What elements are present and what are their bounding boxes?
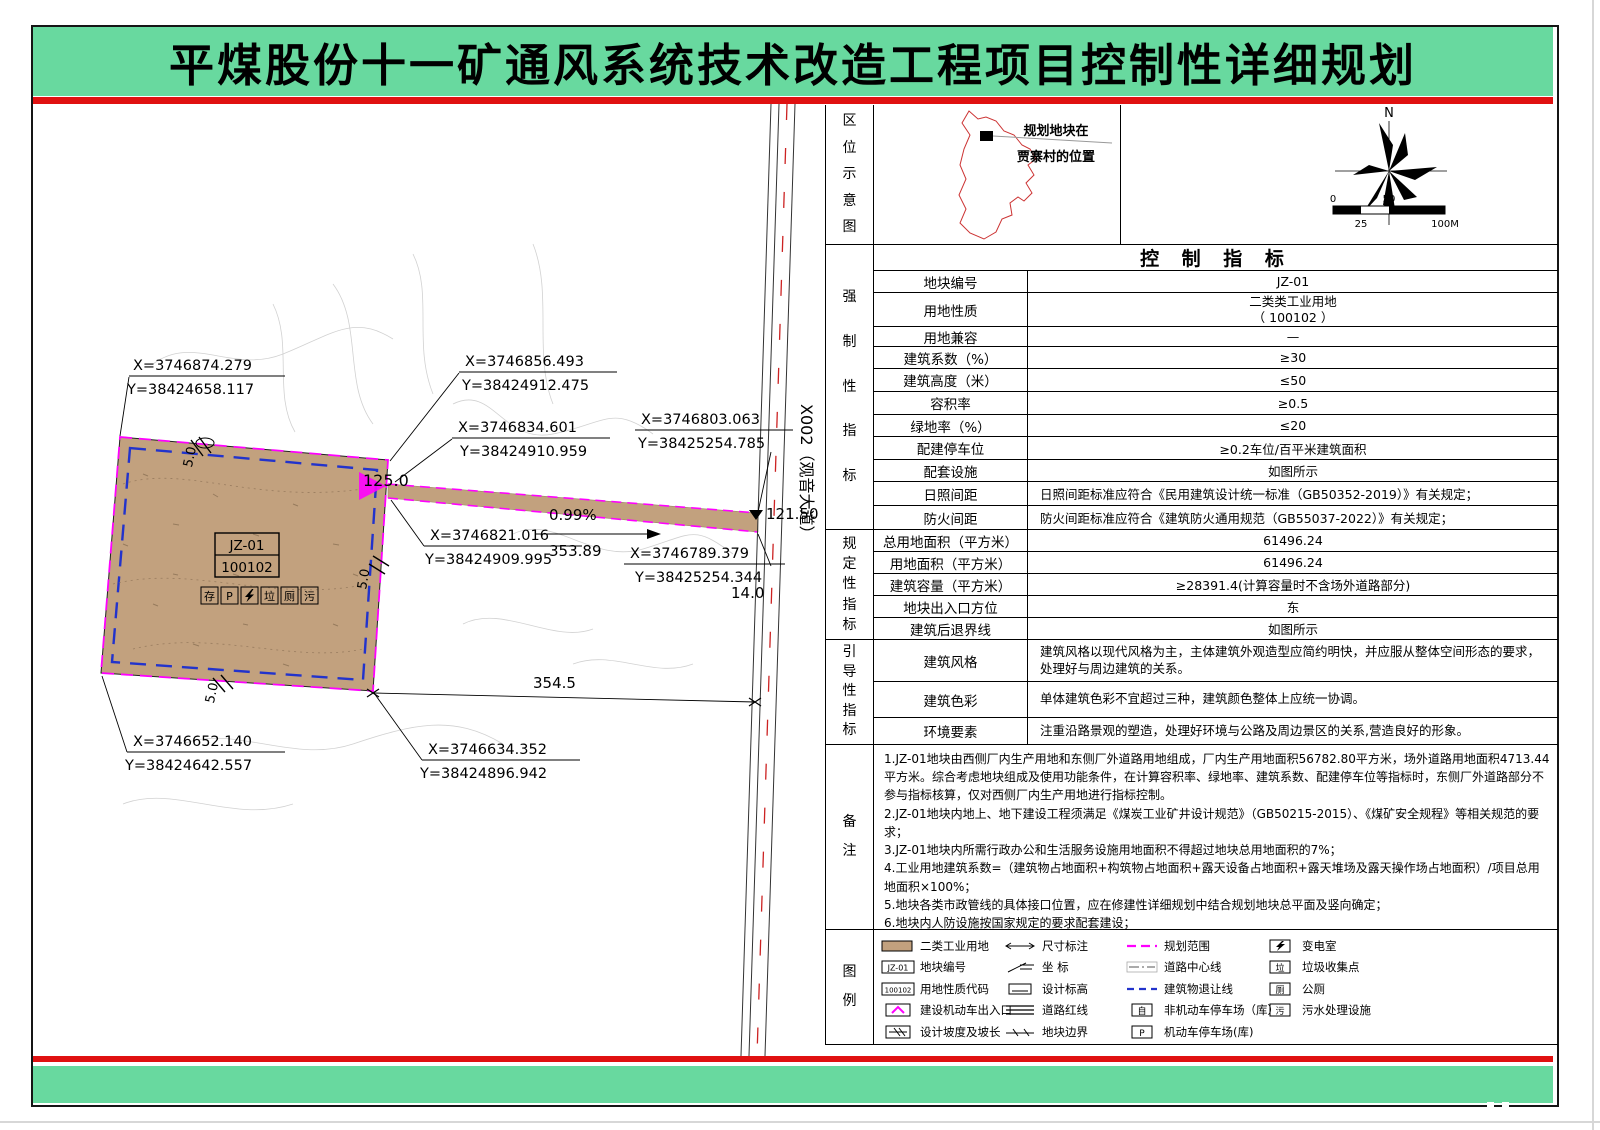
road-centerline-symbol [1124, 959, 1164, 975]
row-environment: 环境要素 注重沿路景观的塑造，处理好环境与公路及周边景区的关系,营造良好的形象。 [874, 718, 1558, 745]
sewage-icon: 污 [304, 590, 315, 603]
legend-col-4: 变电室 垃 垃圾收集点 厕 公厕 污 [1262, 935, 1371, 1021]
row-plot-number: 地块编号 JZ-01 [874, 271, 1558, 293]
sewage-facility-symbol: 污 [1262, 1002, 1302, 1018]
top-red-rule [33, 97, 1553, 104]
window-edge-right [1592, 0, 1594, 1130]
legend-item: 设计坡度及坡长 [880, 1021, 1012, 1043]
row-building-height: 建筑高度（米） ≤50 [874, 369, 1558, 392]
svg-text:JZ-01: JZ-01 [887, 964, 909, 973]
row-land-compat: 用地兼容 — [874, 327, 1558, 347]
legend-item: 建设机动车出入口 [880, 1000, 1012, 1022]
use-code-symbol: 100102 [880, 981, 920, 997]
section-label-mandatory: 强制性指标 [826, 245, 874, 530]
scale-25: 25 [1355, 219, 1368, 230]
svg-text:Y=38424658.117: Y=38424658.117 [126, 382, 254, 398]
dim-125: 125.0 [363, 471, 409, 490]
svg-text:X=3746856.493: X=3746856.493 [465, 354, 584, 370]
legend-item: 垃 垃圾收集点 [1262, 957, 1371, 979]
row-land-use: 用地性质 二类类工业用地 （ 100102 ） [874, 293, 1558, 327]
svg-text:X=3746834.601: X=3746834.601 [458, 420, 577, 436]
notes-block: 1.JZ-01地块由西侧厂内生产用地和东侧厂外道路用地组成，厂内生产用地面积56… [874, 745, 1558, 930]
legend-item: P 机动车停车场(库) [1124, 1021, 1279, 1043]
row-land-area: 用地面积（平方米） 61496.24 [874, 552, 1558, 574]
road-redline-symbol [1002, 1002, 1042, 1018]
location-callout-line2: 贾寨村的位置 [1017, 149, 1095, 165]
industrial-land-swatch [880, 938, 920, 954]
slope-value: 0.99% [549, 506, 597, 524]
scale-50: 50 [1383, 194, 1396, 205]
svg-text:Y=38425254.785: Y=38425254.785 [637, 436, 765, 452]
info-panel: 区位示意图 强制性指标 规定性指标 引导性指标 备注 图例 [825, 105, 1558, 1045]
svg-text:Y=38424642.557: Y=38424642.557 [124, 758, 252, 774]
section-label-location: 区位示意图 [826, 105, 874, 245]
plot-boundary-symbol [1002, 1024, 1042, 1040]
row-green-ratio: 绿地率（%） ≤20 [874, 415, 1558, 437]
section-label-prescriptive: 规定性指标 [826, 530, 874, 640]
planning-scope-symbol [1124, 938, 1164, 954]
site-plan: X002（观音大道） JZ-01 100102 存 P 垃 厕 [33, 104, 825, 1056]
parcel-use-code: 100102 [221, 560, 273, 576]
legend-col-2: 尺寸标注 坐 标 设计标高 [1002, 935, 1088, 1043]
location-map: 规划地块在 贾寨村的位置 [874, 105, 1121, 244]
section-label-notes: 备注 [826, 745, 874, 930]
legend-item: 二类工业用地 [880, 935, 1012, 957]
legend-item: 建筑物退让线 [1124, 978, 1279, 1000]
section-label-column: 区位示意图 强制性指标 规定性指标 引导性指标 备注 图例 [826, 105, 874, 1045]
svg-text:X=3746789.379: X=3746789.379 [630, 546, 749, 562]
location-callout-line1: 规划地块在 [1023, 123, 1088, 139]
note-item: 3.JZ-01地块内所需行政办公和生活服务设施用地面积不得超过地块总用地面积的7… [884, 841, 1550, 859]
svg-text:污: 污 [1275, 1005, 1284, 1017]
wind-rose: N 0 [1121, 105, 1557, 244]
site-plan-drawing: X002（观音大道） JZ-01 100102 存 P 垃 厕 [33, 104, 825, 1056]
row-total-area: 总用地面积（平方米） 61496.24 [874, 530, 1558, 552]
legend-item: 设计标高 [1002, 978, 1088, 1000]
coord-c7: X=3746652.140 Y=38424642.557 [102, 676, 285, 774]
svg-text:Y=38424909.995: Y=38424909.995 [424, 552, 552, 568]
setback-line-symbol [1124, 981, 1164, 997]
substation-symbol [1262, 938, 1302, 954]
scale-bar: 0 50 25 100M [1330, 194, 1459, 230]
dimension-symbol [1002, 938, 1042, 954]
page-title: 平煤股份十一矿通风系统技术改造工程项目控制性详细规划 [169, 29, 1417, 94]
parking-icon: P [226, 590, 233, 603]
row-building-capacity: 建筑容量（平方米） ≥28391.4(计算容量时不含场外道路部分) [874, 574, 1558, 596]
control-table-header: 控 制 指 标 [874, 245, 1558, 271]
row-parking: 配建停车位 ≥0.2车位/百平米建筑面积 [874, 437, 1558, 460]
legend-item: 道路红线 [1002, 1000, 1088, 1022]
bottom-banner [33, 1066, 1553, 1103]
bottom-red-rule [33, 1056, 1553, 1062]
svg-text:X=3746652.140: X=3746652.140 [133, 734, 252, 750]
legend-col-3: 规划范围 道路中心线 建筑物退让线 自 [1124, 935, 1279, 1043]
section-label-legend: 图例 [826, 930, 874, 1045]
parcel-code: JZ-01 [228, 538, 264, 554]
window-edge-bottom [0, 1121, 1600, 1123]
row-sunlight-spacing: 日照间距 日照间距标准应符合《民用建筑设计统一标准（GB50352-2019）》… [874, 482, 1558, 506]
legend-item: 道路中心线 [1124, 957, 1279, 979]
svg-text:100102: 100102 [885, 986, 912, 994]
location-map-drawing: 规划地块在 贾寨村的位置 [874, 105, 1120, 244]
note-item: 4.工业用地建筑系数=（建筑物占地面积+构筑物占地面积+露天设备占地面积+露天堆… [884, 859, 1550, 895]
svg-text:X=3746821.016: X=3746821.016 [430, 528, 549, 544]
legend-item: 污 污水处理设施 [1262, 1000, 1371, 1022]
slope-symbol [880, 1024, 920, 1040]
svg-text:P: P [1139, 1029, 1145, 1039]
wind-rose-cell: N 0 [1121, 105, 1558, 244]
plot-location-marker [980, 131, 993, 141]
svg-text:5.0: 5.0 [203, 681, 222, 704]
legend-item: JZ-01 地块编号 [880, 957, 1012, 979]
lightning-icon [1276, 941, 1285, 951]
coordinate-symbol [1002, 959, 1042, 975]
design-elevation-symbol [1002, 981, 1042, 997]
coord-c3: X=3746834.601 Y=38424910.959 [395, 420, 610, 482]
road-width: 14.0 [731, 584, 764, 602]
row-supporting-facilities: 配套设施 如图所示 [874, 460, 1558, 482]
border-gap [1502, 1102, 1509, 1107]
plot-number-symbol: JZ-01 [880, 959, 920, 975]
legend-item: 变电室 [1262, 935, 1371, 957]
legend-item: 尺寸标注 [1002, 935, 1088, 957]
trash-icon: 垃 [264, 589, 275, 603]
note-item: 2.JZ-01地块内地上、地下建设工程须满足《煤炭工业矿井设计规范》（GB502… [884, 805, 1550, 841]
title-banner: 平煤股份十一矿通风系统技术改造工程项目控制性详细规划 [33, 27, 1553, 96]
svg-text:Y=38424912.475: Y=38424912.475 [461, 378, 589, 394]
svg-text:Y=38424910.959: Y=38424910.959 [459, 444, 587, 460]
svg-text:X=3746634.352: X=3746634.352 [428, 742, 547, 758]
row-building-style: 建筑风格 建筑风格以现代风格为主，主体建筑外观造型应简约明快，并应服从整体空间形… [874, 640, 1558, 682]
note-item: 1.JZ-01地块由西侧厂内生产用地和东侧厂外道路用地组成，厂内生产用地面积56… [884, 750, 1550, 805]
storage-icon: 存 [204, 589, 215, 603]
north-label: N [1384, 106, 1394, 121]
legend-item: 规划范围 [1124, 935, 1279, 957]
section-label-guiding: 引导性指标 [826, 640, 874, 745]
row-building-coeff: 建筑系数（%） ≥30 [874, 347, 1558, 369]
plan-sheet: 平煤股份十一矿通风系统技术改造工程项目控制性详细规划 [0, 0, 1600, 1130]
svg-text:垃: 垃 [1275, 962, 1284, 974]
vehicle-entrance-symbol [880, 1002, 920, 1018]
row-setback: 建筑后退界线 如图所示 [874, 618, 1558, 640]
row-entrance-direction: 地块出入口方位 东 [874, 596, 1558, 618]
svg-text:X=3746874.279: X=3746874.279 [133, 358, 252, 374]
coord-c8: X=3746634.352 Y=38424896.942 [374, 693, 580, 782]
location-inset-row: 规划地块在 贾寨村的位置 N [874, 105, 1558, 245]
border-gap [1487, 1102, 1494, 1107]
public-toilet-symbol: 厕 [1262, 981, 1302, 997]
coord-c1: X=3746874.279 Y=38424658.117 [120, 358, 285, 436]
svg-text:自: 自 [1137, 1005, 1146, 1017]
toilet-icon: 厕 [284, 590, 295, 603]
row-fire-spacing: 防火间距 防火间距标准应符合《建筑防火通用规范（GB55037-2022）》有关… [874, 506, 1558, 530]
note-item: 5.地块各类市政管线的具体接口位置，应在修建性详细规划中结合规划地块总平面及竖向… [884, 896, 1550, 914]
legend-item: 厕 公厕 [1262, 978, 1371, 1000]
car-parking-symbol: P [1124, 1024, 1164, 1040]
coord-c6: X=3746789.379 Y=38425254.344 [624, 534, 785, 586]
legend-block: 二类工业用地 JZ-01 地块编号 100102 用地性质代码 [874, 930, 1558, 1045]
dim-354-value: 354.5 [533, 674, 576, 692]
trash-point-symbol: 垃 [1262, 959, 1302, 975]
dim-354: 354.5 [367, 674, 761, 706]
panel-content: 规划地块在 贾寨村的位置 N [874, 105, 1558, 1045]
elevation-value: 121.50 [766, 505, 819, 523]
legend-item: 坐 标 [1002, 957, 1088, 979]
note-item: 6.地块内人防设施按国家规定的要求配套建设； [884, 914, 1550, 930]
scale-0: 0 [1330, 194, 1336, 205]
legend-col-1: 二类工业用地 JZ-01 地块编号 100102 用地性质代码 [880, 935, 1012, 1043]
elevation-marker: 121.50 [749, 505, 819, 523]
legend-item: 100102 用地性质代码 [880, 978, 1012, 1000]
svg-text:厕: 厕 [1275, 985, 1284, 996]
legend-item: 地块边界 [1002, 1021, 1088, 1043]
svg-text:X=3746803.063: X=3746803.063 [641, 412, 760, 428]
row-far: 容积率 ≥0.5 [874, 392, 1558, 415]
scale-100: 100M [1431, 219, 1459, 230]
legend-item: 自 非机动车停车场（库） [1124, 1000, 1279, 1022]
svg-text:Y=38424896.942: Y=38424896.942 [419, 766, 547, 782]
slope-length: 353.89 [549, 542, 602, 560]
bike-parking-symbol: 自 [1124, 1002, 1164, 1018]
row-building-color: 建筑色彩 单体建筑色彩不宜超过三种，建筑颜色整体上应统一协调。 [874, 682, 1558, 718]
